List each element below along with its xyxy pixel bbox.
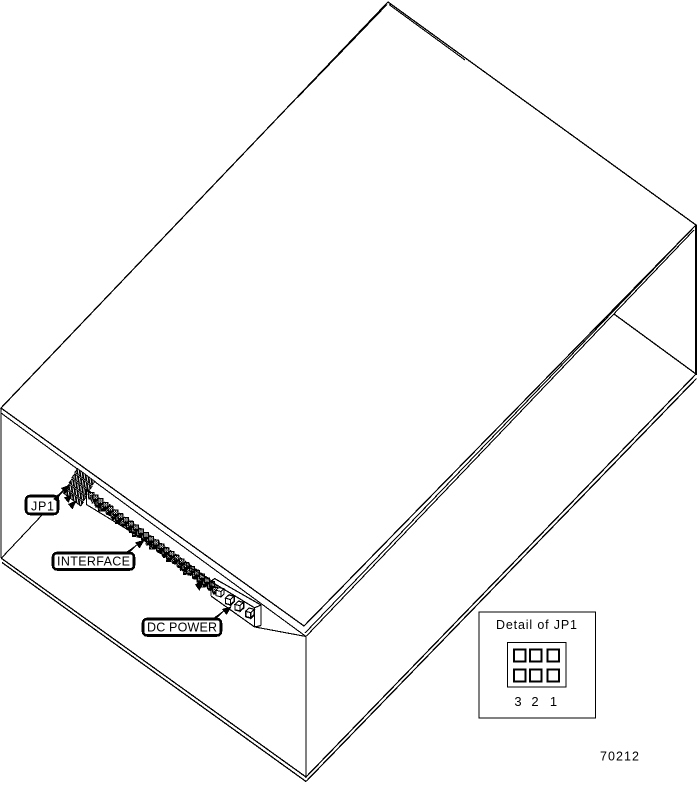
svg-text:INTERFACE: INTERFACE [57, 555, 130, 569]
svg-text:JP1: JP1 [31, 500, 54, 514]
svg-text:DC POWER: DC POWER [147, 621, 217, 635]
svg-text:70212: 70212 [600, 750, 639, 764]
svg-text:3: 3 [514, 694, 521, 709]
svg-text:2: 2 [531, 694, 538, 709]
svg-text:Detail of JP1: Detail of JP1 [496, 618, 577, 632]
svg-text:1: 1 [550, 694, 557, 709]
